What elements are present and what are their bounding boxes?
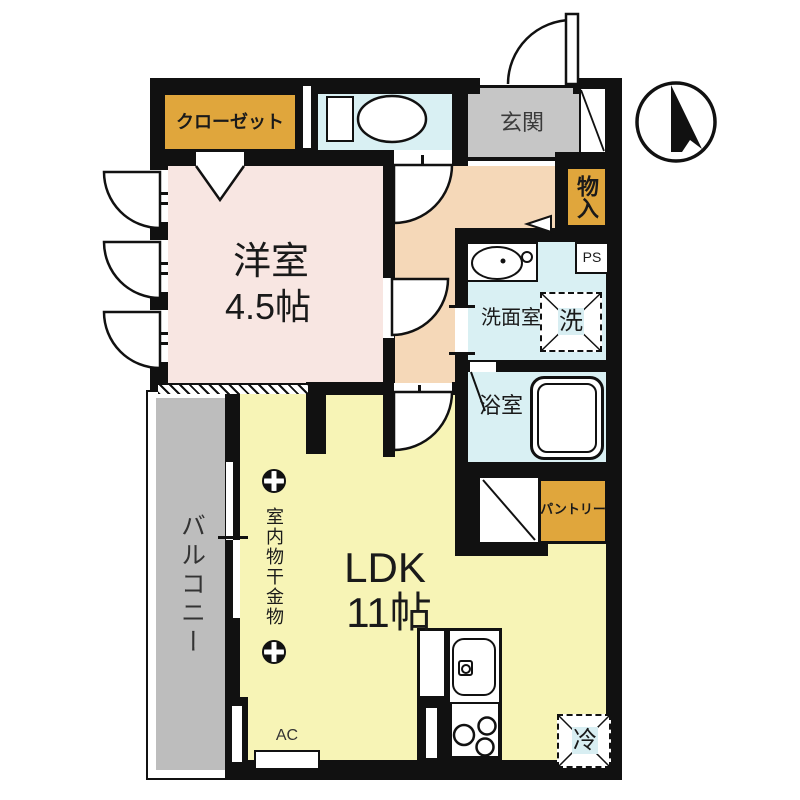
ldk-label: LDK	[344, 547, 426, 589]
bathtub-inner	[537, 383, 597, 453]
entrance-door-leaf	[566, 14, 578, 84]
refrigerator-label: 冷	[572, 729, 598, 753]
wall-opening	[232, 706, 242, 762]
washing-machine-label: 洗	[558, 310, 584, 334]
wall-opening	[394, 383, 452, 395]
north-arrow-icon	[637, 83, 715, 161]
kitchen-faucet	[458, 660, 473, 676]
washroom-label: 洗面室	[481, 308, 541, 328]
floor-plan: クローゼット 玄関 物入 洋室 4.5帖 洗面室 PS 洗 浴室 パントリー L…	[0, 0, 800, 800]
wall-opening	[150, 240, 168, 292]
hallway-top	[455, 166, 555, 228]
closet-label: クローゼット	[176, 113, 284, 131]
frame-tick	[128, 332, 168, 335]
wall-segment	[455, 542, 548, 556]
frame-tick	[128, 272, 168, 275]
frame-tick	[449, 352, 475, 355]
frame-tick	[128, 192, 168, 195]
entrance-label: 玄関	[500, 112, 544, 134]
pantry-door-panel	[480, 478, 538, 542]
wall-opening	[303, 86, 311, 148]
western-room-size: 4.5帖	[225, 289, 311, 325]
washbasin-counter	[466, 242, 538, 282]
laundry-hanger-label: 室内物干金物	[265, 507, 283, 627]
frame-tick	[466, 157, 556, 161]
wall-opening	[426, 708, 437, 758]
wall-segment	[606, 78, 622, 780]
frame-tick	[128, 202, 168, 205]
wall-opening	[226, 462, 233, 540]
storage-label: 物入	[575, 175, 597, 219]
frame-tick	[128, 262, 168, 265]
pipe-space-label: PS	[583, 250, 602, 264]
wall-segment	[306, 382, 326, 454]
frame-tick	[449, 305, 475, 308]
wall-segment	[452, 382, 468, 395]
wall-segment	[455, 228, 612, 242]
wall-opening	[383, 278, 394, 338]
toilet-tank	[326, 96, 354, 142]
wall-opening	[150, 310, 168, 362]
wall-opening	[470, 362, 496, 372]
shoe-cabinet	[580, 88, 606, 153]
frame-tick	[418, 385, 421, 395]
pantry-label: パントリー	[540, 503, 606, 516]
wall-segment	[244, 150, 394, 166]
ac-unit	[254, 750, 320, 770]
bathroom-label: 浴室	[479, 395, 523, 417]
wall-opening	[233, 540, 240, 618]
sliding-partition	[158, 383, 308, 394]
kitchen-end-panel	[417, 628, 447, 699]
frame-tick	[421, 155, 424, 167]
frame-tick	[480, 85, 573, 88]
wall-segment	[452, 78, 468, 166]
entrance-door-arc	[508, 20, 572, 84]
ac-label: AC	[276, 728, 298, 744]
wall-segment	[150, 150, 196, 166]
western-room-label: 洋室	[233, 243, 309, 281]
wall-opening	[455, 308, 468, 352]
frame-tick	[218, 536, 248, 539]
balcony-label: バルコニー	[179, 513, 204, 658]
hallway	[394, 166, 455, 388]
wall-opening	[150, 170, 168, 222]
ldk-size: 11帖	[346, 592, 432, 634]
kitchen-stove	[450, 702, 500, 758]
wall-opening	[196, 150, 244, 166]
frame-tick	[128, 342, 168, 345]
